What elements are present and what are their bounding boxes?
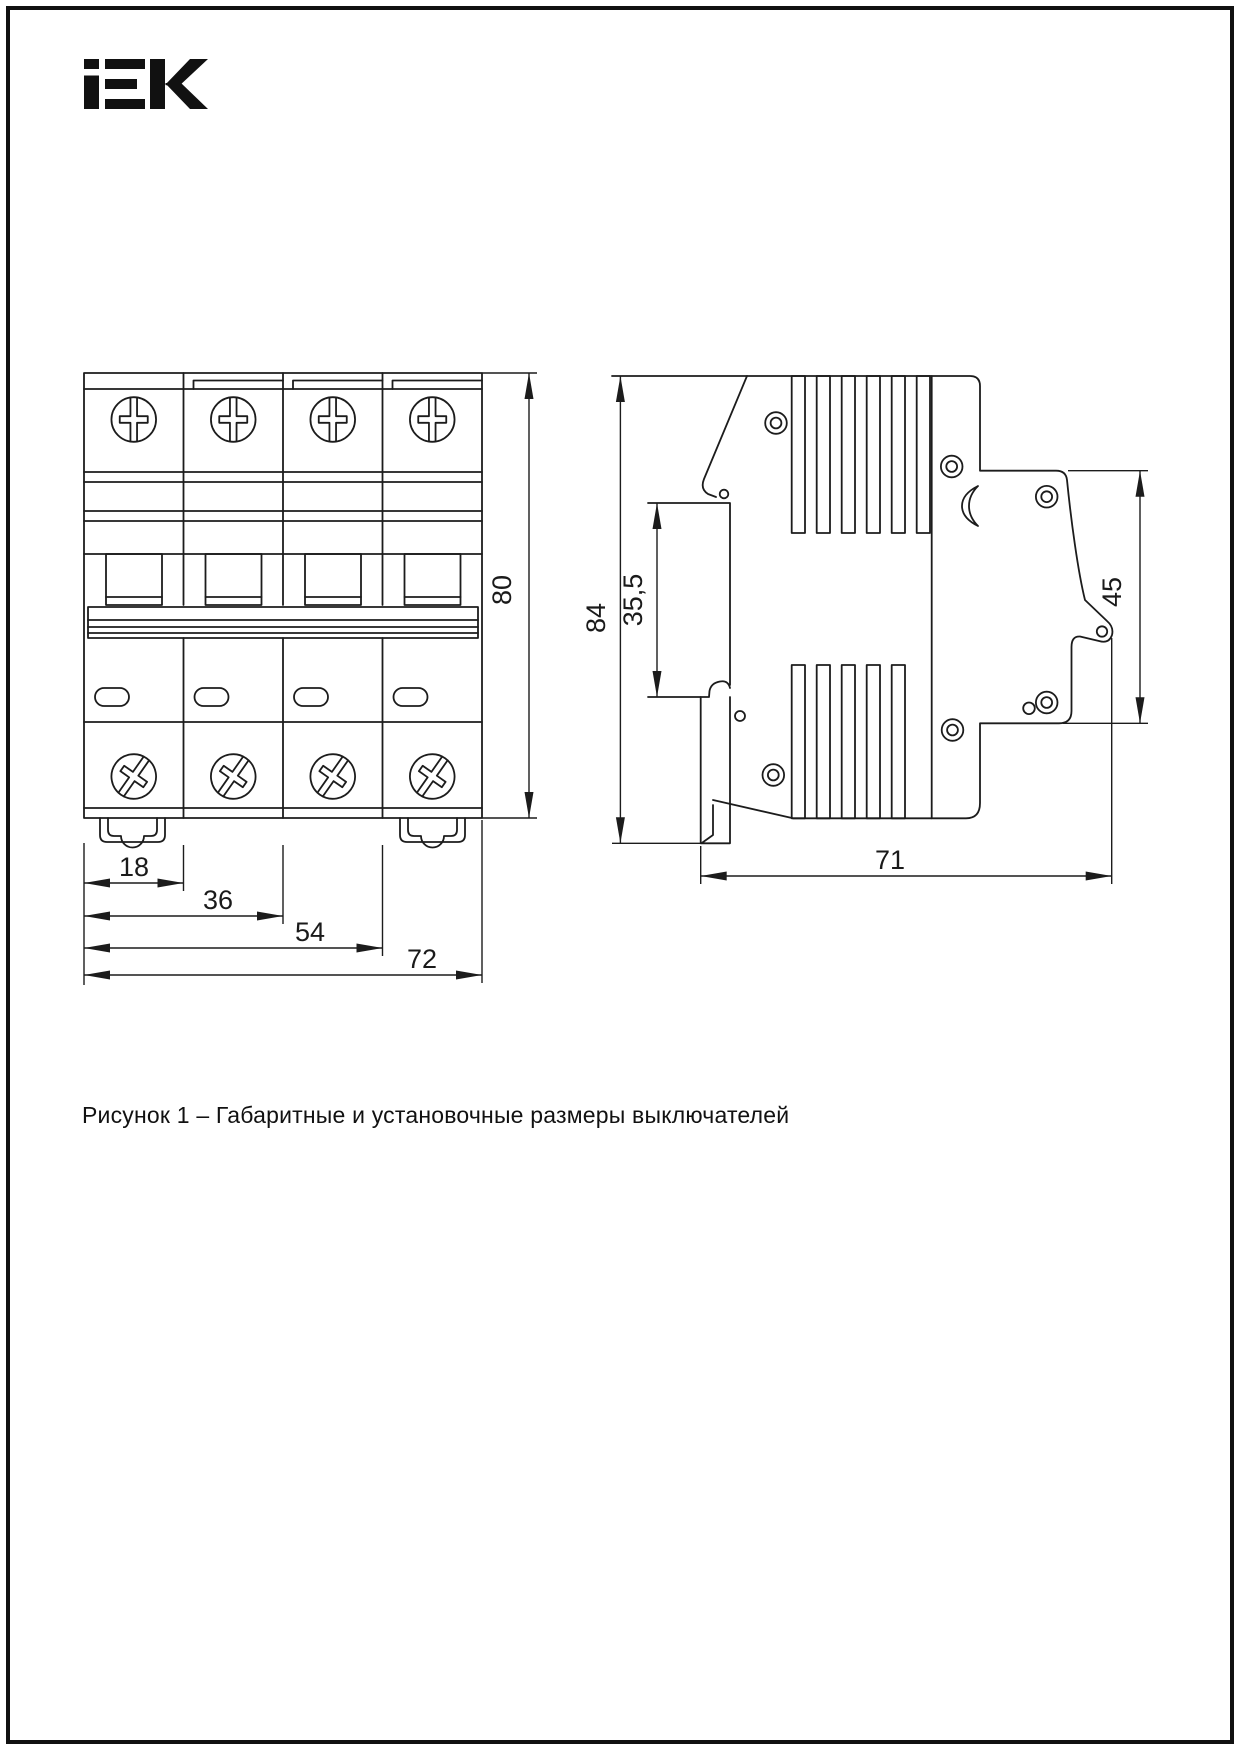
din-clip-left <box>100 818 165 848</box>
side-body-outline <box>612 376 1112 818</box>
screw-terminal-top-1 <box>111 397 156 442</box>
dimension-depth-71: 71 <box>701 638 1112 884</box>
dim-label-36: 36 <box>203 885 233 915</box>
toggle-interlock-bar <box>88 607 478 638</box>
screw-terminal-bottom-4 <box>401 745 463 807</box>
dim-label-35-5: 35,5 <box>618 574 648 627</box>
front-view-drawing: 80 18 36 54 72 <box>84 373 537 985</box>
toggle-handle-1 <box>106 554 162 605</box>
dimension-widths: 18 36 54 72 <box>84 820 482 985</box>
dim-label-72: 72 <box>407 944 437 974</box>
dimension-front-height: 45 <box>1063 471 1148 724</box>
marking-window-2 <box>195 688 229 706</box>
latch-hole <box>1097 626 1107 636</box>
vent-slots-bottom <box>792 665 905 818</box>
marking-window-1 <box>95 688 129 706</box>
rivet-1 <box>765 412 787 434</box>
rivet-5 <box>942 719 964 741</box>
dim-label-80: 80 <box>487 575 517 605</box>
dim-label-71: 71 <box>875 845 905 875</box>
toggle-handle-4 <box>405 554 461 605</box>
dim-label-54: 54 <box>295 917 325 947</box>
screw-terminal-bottom-2 <box>202 745 264 807</box>
kidney-slot <box>962 486 978 526</box>
din-clip-right <box>400 818 465 848</box>
rivet-3 <box>1036 486 1058 508</box>
toggle-handle-3 <box>305 554 361 605</box>
dim-label-18: 18 <box>119 852 149 882</box>
dim-label-45: 45 <box>1097 577 1127 607</box>
rivet-6 <box>1036 692 1058 714</box>
din-clip-side <box>701 697 730 843</box>
screw-terminal-bottom-1 <box>103 745 165 807</box>
screw-terminal-top-3 <box>310 397 355 442</box>
vent-slots-top <box>792 376 930 533</box>
dimension-height-80: 80 <box>482 373 537 818</box>
rivet-4 <box>763 764 785 786</box>
screw-terminal-top-4 <box>410 397 455 442</box>
dimension-drawing: 80 18 36 54 72 <box>0 0 1240 1750</box>
hook-pivot-hole <box>720 490 729 499</box>
figure-caption: Рисунок 1 – Габаритные и установочные ра… <box>82 1102 982 1129</box>
dimension-din-seat: 35,5 <box>618 503 662 697</box>
side-view-drawing: 84 35,5 45 71 <box>581 376 1148 884</box>
marking-window-4 <box>394 688 428 706</box>
screw-terminal-top-2 <box>211 397 256 442</box>
document-page: 80 18 36 54 72 <box>0 0 1240 1750</box>
marking-window-3 <box>294 688 328 706</box>
module-dividers <box>184 373 383 818</box>
screw-terminal-bottom-3 <box>302 745 364 807</box>
rivet-2 <box>941 456 963 478</box>
dim-label-84: 84 <box>581 603 611 633</box>
toggle-handle-2 <box>206 554 262 605</box>
